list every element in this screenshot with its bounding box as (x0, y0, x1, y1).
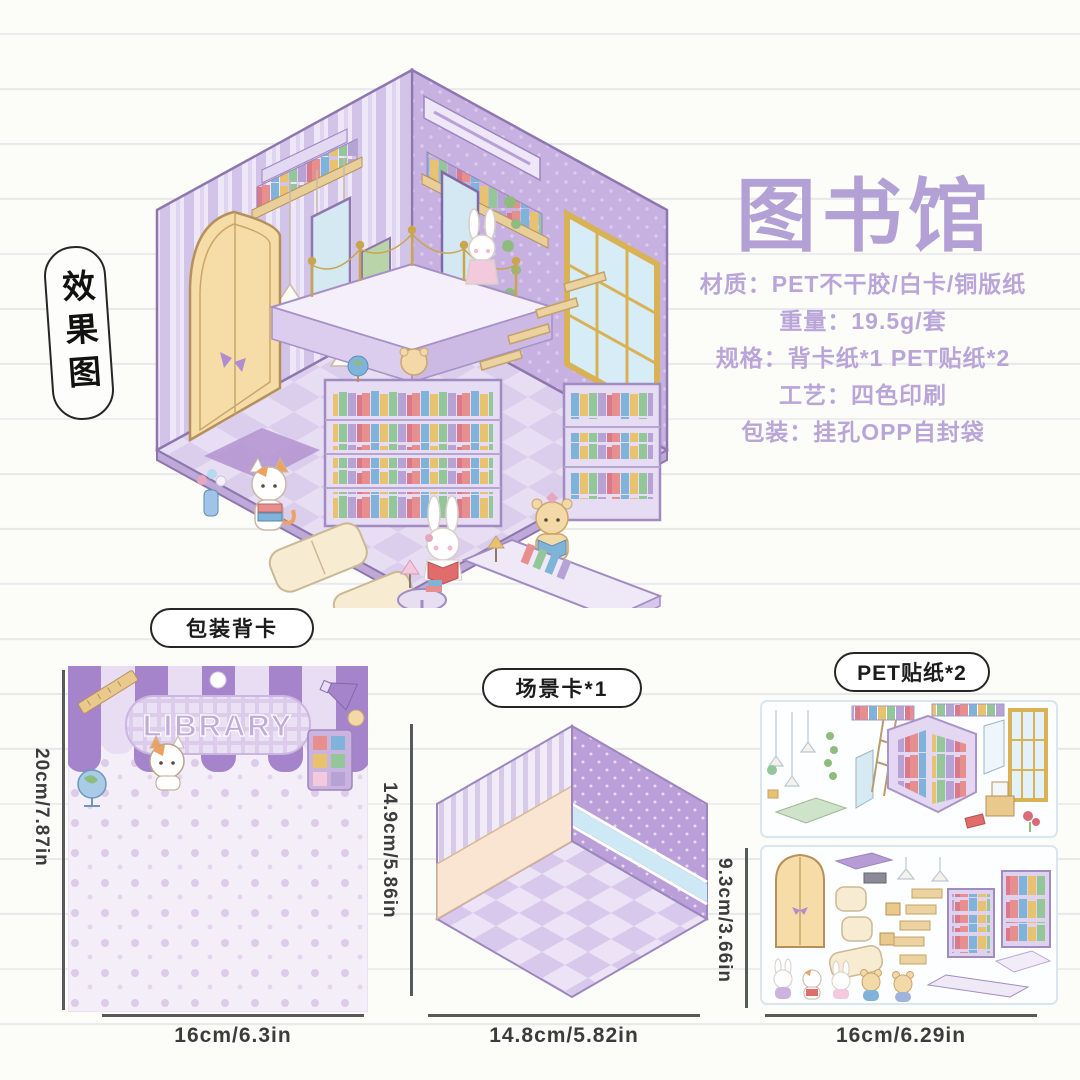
spec-weight: 重量：19.5g/套 (668, 303, 1058, 340)
back-card-width-dim: 16cm/6.3in (102, 1024, 364, 1048)
sticker-sheet-2-svg (760, 845, 1058, 1005)
scene-card-height-dim: 14.9cm/5.86in (378, 782, 400, 919)
library-room-svg (112, 52, 680, 608)
back-card-preview: LIBRARY (68, 666, 368, 1012)
bookshelf-decoration (308, 730, 352, 790)
sticker-width-dim: 16cm/6.29in (765, 1024, 1037, 1048)
library-banner-text: LIBRARY (143, 708, 294, 743)
polka-dot-area (68, 754, 368, 1012)
sticker-tall-window (1010, 710, 1046, 800)
back-card-height-line (62, 670, 65, 1010)
back-card-width-line (102, 1014, 364, 1017)
sticker-height-dim: 9.3cm/3.66in (713, 858, 735, 983)
right-bookshelf (564, 384, 660, 520)
sticker-shelf-strip-2 (932, 704, 1004, 716)
sticker-window-frame (984, 720, 1004, 774)
scene-card-height-line (410, 724, 413, 996)
center-bookshelf (325, 380, 501, 526)
bear-head-decoration (348, 710, 364, 726)
sticker-shelf-strip (852, 706, 914, 720)
sticker-sheet-1-svg (760, 700, 1058, 838)
back-card-height-dim: 20cm/7.87in (30, 748, 52, 867)
scene-card-label-pill: 场景卡*1 (482, 668, 642, 708)
sticker-sheet-1 (760, 700, 1058, 838)
sticker-mirror (856, 750, 873, 808)
product-specs: 材质：PET不干胶/白卡/铜版纸 重量：19.5g/套 规格：背卡纸*1 PET… (668, 266, 1058, 451)
back-card-svg: LIBRARY (68, 666, 368, 1012)
sticker-label-pill: PET贴纸*2 (834, 652, 990, 692)
scene-card-width-dim: 14.8cm/5.82in (428, 1024, 700, 1048)
spec-material: 材质：PET不干胶/白卡/铜版纸 (668, 266, 1058, 303)
back-card-label-pill: 包装背卡 (150, 608, 314, 648)
sticker-width-line (765, 1014, 1037, 1017)
spec-package: 包装：挂孔OPP自封袋 (668, 414, 1058, 451)
sticker-bookshelf-a (948, 889, 994, 957)
back-card-label-text: 包装背卡 (186, 613, 278, 643)
sticker-height-line (745, 848, 748, 1008)
effect-image-label-text: 效果图 (51, 267, 108, 399)
scene-card-svg (427, 718, 717, 1008)
spec-size: 规格：背卡纸*1 PET贴纸*2 (668, 340, 1058, 377)
scene-card-width-line (428, 1014, 700, 1017)
scene-card-label-text: 场景卡*1 (516, 673, 609, 703)
sticker-label-text: PET贴纸*2 (857, 657, 967, 687)
sticker-arched-door (776, 855, 824, 947)
effect-image-label: 效果图 (42, 244, 116, 422)
bear-at-shelf (400, 348, 428, 375)
hang-hole (210, 672, 226, 688)
spec-craft: 工艺：四色印刷 (668, 377, 1058, 414)
sticker-bookshelf-b (1002, 871, 1050, 947)
scene-card-preview (427, 718, 717, 1008)
sticker-sheet-2 (760, 845, 1058, 1005)
library-room-illustration (112, 52, 680, 608)
product-title: 图书馆 (736, 152, 994, 268)
